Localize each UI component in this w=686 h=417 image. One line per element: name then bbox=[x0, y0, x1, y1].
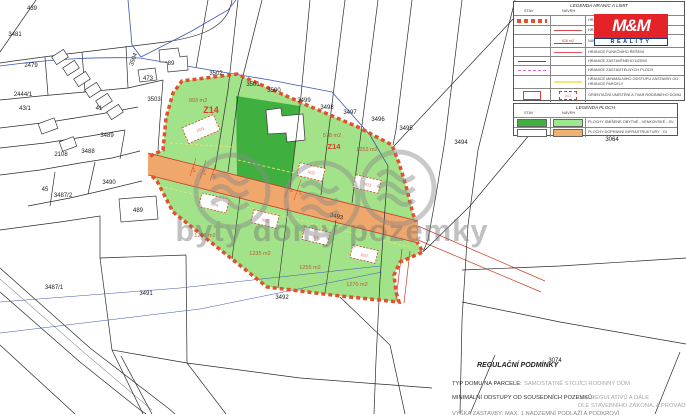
developable-line-swatch bbox=[518, 70, 546, 71]
legend-col-navrh: NÁVRH bbox=[562, 111, 575, 115]
parcel-number-label: 3504 bbox=[129, 52, 139, 67]
parcel-number-label: 3499 bbox=[297, 98, 311, 104]
lot-area-label: 1270 m2 bbox=[346, 282, 367, 288]
parcel-number-label: 3492 bbox=[275, 295, 289, 301]
parcel-number-label: 2108 bbox=[54, 152, 68, 158]
parcel-line-swatch bbox=[554, 30, 582, 31]
parcel-number-label: 3487/2 bbox=[54, 193, 73, 199]
new-boundary-swatch bbox=[554, 43, 582, 44]
legend-row: HRANICE ZASTAVĚNÉHO ÚZEMÍ bbox=[514, 56, 684, 65]
boundary-dashed-swatch bbox=[517, 19, 547, 23]
parcel-number-label: 3487/1 bbox=[45, 285, 64, 291]
legend-row: HRANICE ZASTAVITELNÝCH PLOCH bbox=[514, 65, 684, 75]
legend-row: HRANICE FUNKČNÍHO ŘEŠENÍ bbox=[514, 47, 684, 56]
legend-col-stav: STAV bbox=[524, 9, 533, 13]
house-type-label: TYP DOMU NA PARCELE: bbox=[452, 381, 522, 387]
lot-area-label: 993 m2 bbox=[189, 98, 207, 104]
parcel-number-label: 3498 bbox=[320, 105, 334, 111]
building-89 bbox=[159, 48, 188, 72]
zone-code-label: Z14 bbox=[203, 105, 219, 115]
legend-row: X01 ORIENTAČNÍ UMÍSTĚNÍ A TVAR RODINNÉHO… bbox=[514, 88, 684, 102]
setback-label: MINIMÁLNÍ ODSTUPY OD SOUSEDNÍCH POZEMKŮ: bbox=[452, 395, 594, 401]
legend-limits-title: LEGENDA HRANIC A LIMIT bbox=[514, 3, 684, 8]
white-stav-swatch bbox=[517, 129, 547, 137]
parcel-number-label: 89 bbox=[168, 61, 175, 67]
setback-line-swatch bbox=[554, 81, 582, 83]
logo-reality-text: REALITY bbox=[594, 38, 668, 46]
watermark-text: byty domy pozemky bbox=[175, 213, 488, 248]
mm-reality-logo: M&M REALITY bbox=[594, 14, 668, 46]
green-navrh-swatch bbox=[553, 119, 583, 127]
height-rule-clipped: VÝŠKA ZÁSTAVBY: MAX. 1 NADZEMNÍ PODLAŽÍ … bbox=[452, 411, 619, 417]
green-stav-swatch bbox=[517, 119, 547, 127]
parcel-number-label: 3497 bbox=[343, 110, 357, 116]
legend-ploch-title: LEGENDA PLOCH bbox=[514, 105, 677, 110]
parcel-number-label: 3481 bbox=[8, 32, 22, 38]
parcel-number-label: 3502 bbox=[209, 71, 223, 77]
zone-code-label: Z14 bbox=[328, 142, 342, 151]
lot-area-label: 1255 m2 bbox=[299, 265, 320, 271]
parcel-number-label: 43/1 bbox=[19, 106, 31, 112]
legend-col-stav: STAV bbox=[524, 111, 533, 115]
parcel-number-label: 3494 bbox=[454, 140, 468, 146]
function-line-swatch bbox=[554, 52, 582, 53]
parcel-number-label: 3503 bbox=[147, 97, 161, 103]
legend-row: PLOCHY DOPRAVNÍ INFRASTRUKTURY - DI bbox=[514, 127, 677, 137]
house-type-value: SAMOSTATNĚ STOJÍCÍ RODINNÝ DŮM bbox=[524, 381, 630, 387]
setback-value-1: DLE REGULATIVŮ A DÁLE bbox=[578, 395, 649, 401]
house-box-dashed-swatch: X01 bbox=[559, 91, 577, 100]
cadastral-map-page: { "map": { "watermark": "byty domy pozem… bbox=[0, 0, 686, 414]
parcel-number-label: 41 bbox=[96, 106, 103, 112]
parcel-number-label: 439 bbox=[27, 6, 38, 12]
regulations-title: REGULAČNÍ PODMÍNKY bbox=[477, 362, 558, 369]
parcel-number-label: 45 bbox=[42, 187, 49, 193]
builtup-line-swatch bbox=[518, 61, 546, 62]
legend-row: PLOCHY SMÍŠENÉ OBYTNÉ - VENKOVSKÉ - SV bbox=[514, 117, 677, 127]
parcel-number-label: 3500 bbox=[267, 88, 281, 94]
parcel-number-label: 473 bbox=[143, 76, 154, 82]
parcel-number-label: 489 bbox=[133, 208, 144, 214]
parcel-number-label: 3496 bbox=[371, 117, 385, 123]
legend-col-navrh: NÁVRH bbox=[562, 9, 575, 13]
parcel-number-label: 2444/1 bbox=[14, 92, 33, 98]
parcel-number-label: 3488 bbox=[81, 149, 95, 155]
orange-navrh-swatch bbox=[553, 129, 583, 137]
logo-mm-text: M&M bbox=[594, 14, 668, 38]
house-box-swatch bbox=[523, 91, 541, 100]
lot-area-label: 578 m2 bbox=[323, 133, 341, 139]
parcel-number-label: 3064 bbox=[605, 137, 619, 143]
lot-area-label: 1235 m2 bbox=[249, 251, 270, 257]
parcel-number-label: 3491 bbox=[139, 291, 153, 297]
legend-row: HRANICE MINIMÁLNÍHO ODSTUPU ZÁSTAVBY OD … bbox=[514, 75, 684, 88]
setback-value-2: DLE STAVEBNÍHO ZÁKONA, A PROVÁDĚCÍCH VYH… bbox=[578, 403, 686, 409]
parcel-number-label: 3490 bbox=[102, 180, 116, 186]
parcel-number-label: 2479 bbox=[24, 63, 38, 69]
legend-ploch: LEGENDA PLOCH STAV NÁVRH PLOCHY SMÍŠENÉ … bbox=[513, 103, 678, 136]
parcel-number-label: 3495 bbox=[399, 126, 413, 132]
lot-area-label: 1253 m2 bbox=[356, 147, 377, 153]
parcel-number-label: 3501 bbox=[246, 82, 260, 88]
parcel-number-label: 3489 bbox=[100, 133, 114, 139]
